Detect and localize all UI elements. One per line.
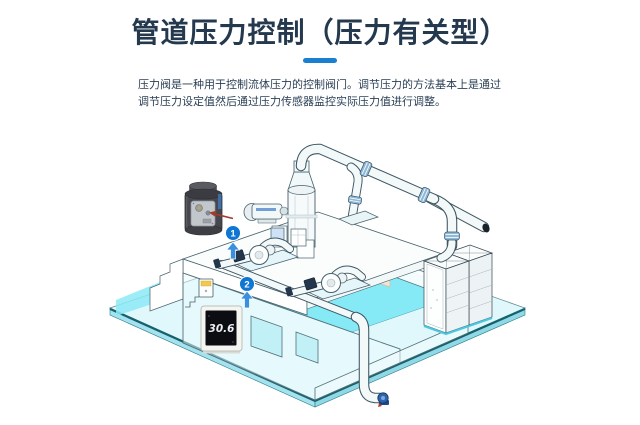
slide-canvas: 管道压力控制（压力有关型） 压力阀是一种用于控制流体压力的控制阀门。调节压力的方…	[0, 0, 640, 425]
step-marker-2: 2	[239, 276, 254, 291]
svg-text:30.6: 30.6	[209, 323, 235, 335]
pressure-display: 30.6	[201, 306, 242, 354]
step-marker-1: 1	[225, 225, 240, 240]
pipe-coupling-c	[445, 232, 460, 240]
svg-text:1: 1	[230, 228, 236, 239]
drain-pump	[378, 393, 389, 407]
deck-box-white	[291, 229, 306, 246]
piping-plant-diagram: 1 2 30.6	[0, 0, 640, 425]
filter-tower-units	[424, 245, 492, 334]
svg-text:2: 2	[244, 279, 249, 290]
blower-unit	[244, 204, 288, 224]
filter-unit-1	[424, 253, 469, 334]
pressure-valve-product	[185, 182, 222, 235]
